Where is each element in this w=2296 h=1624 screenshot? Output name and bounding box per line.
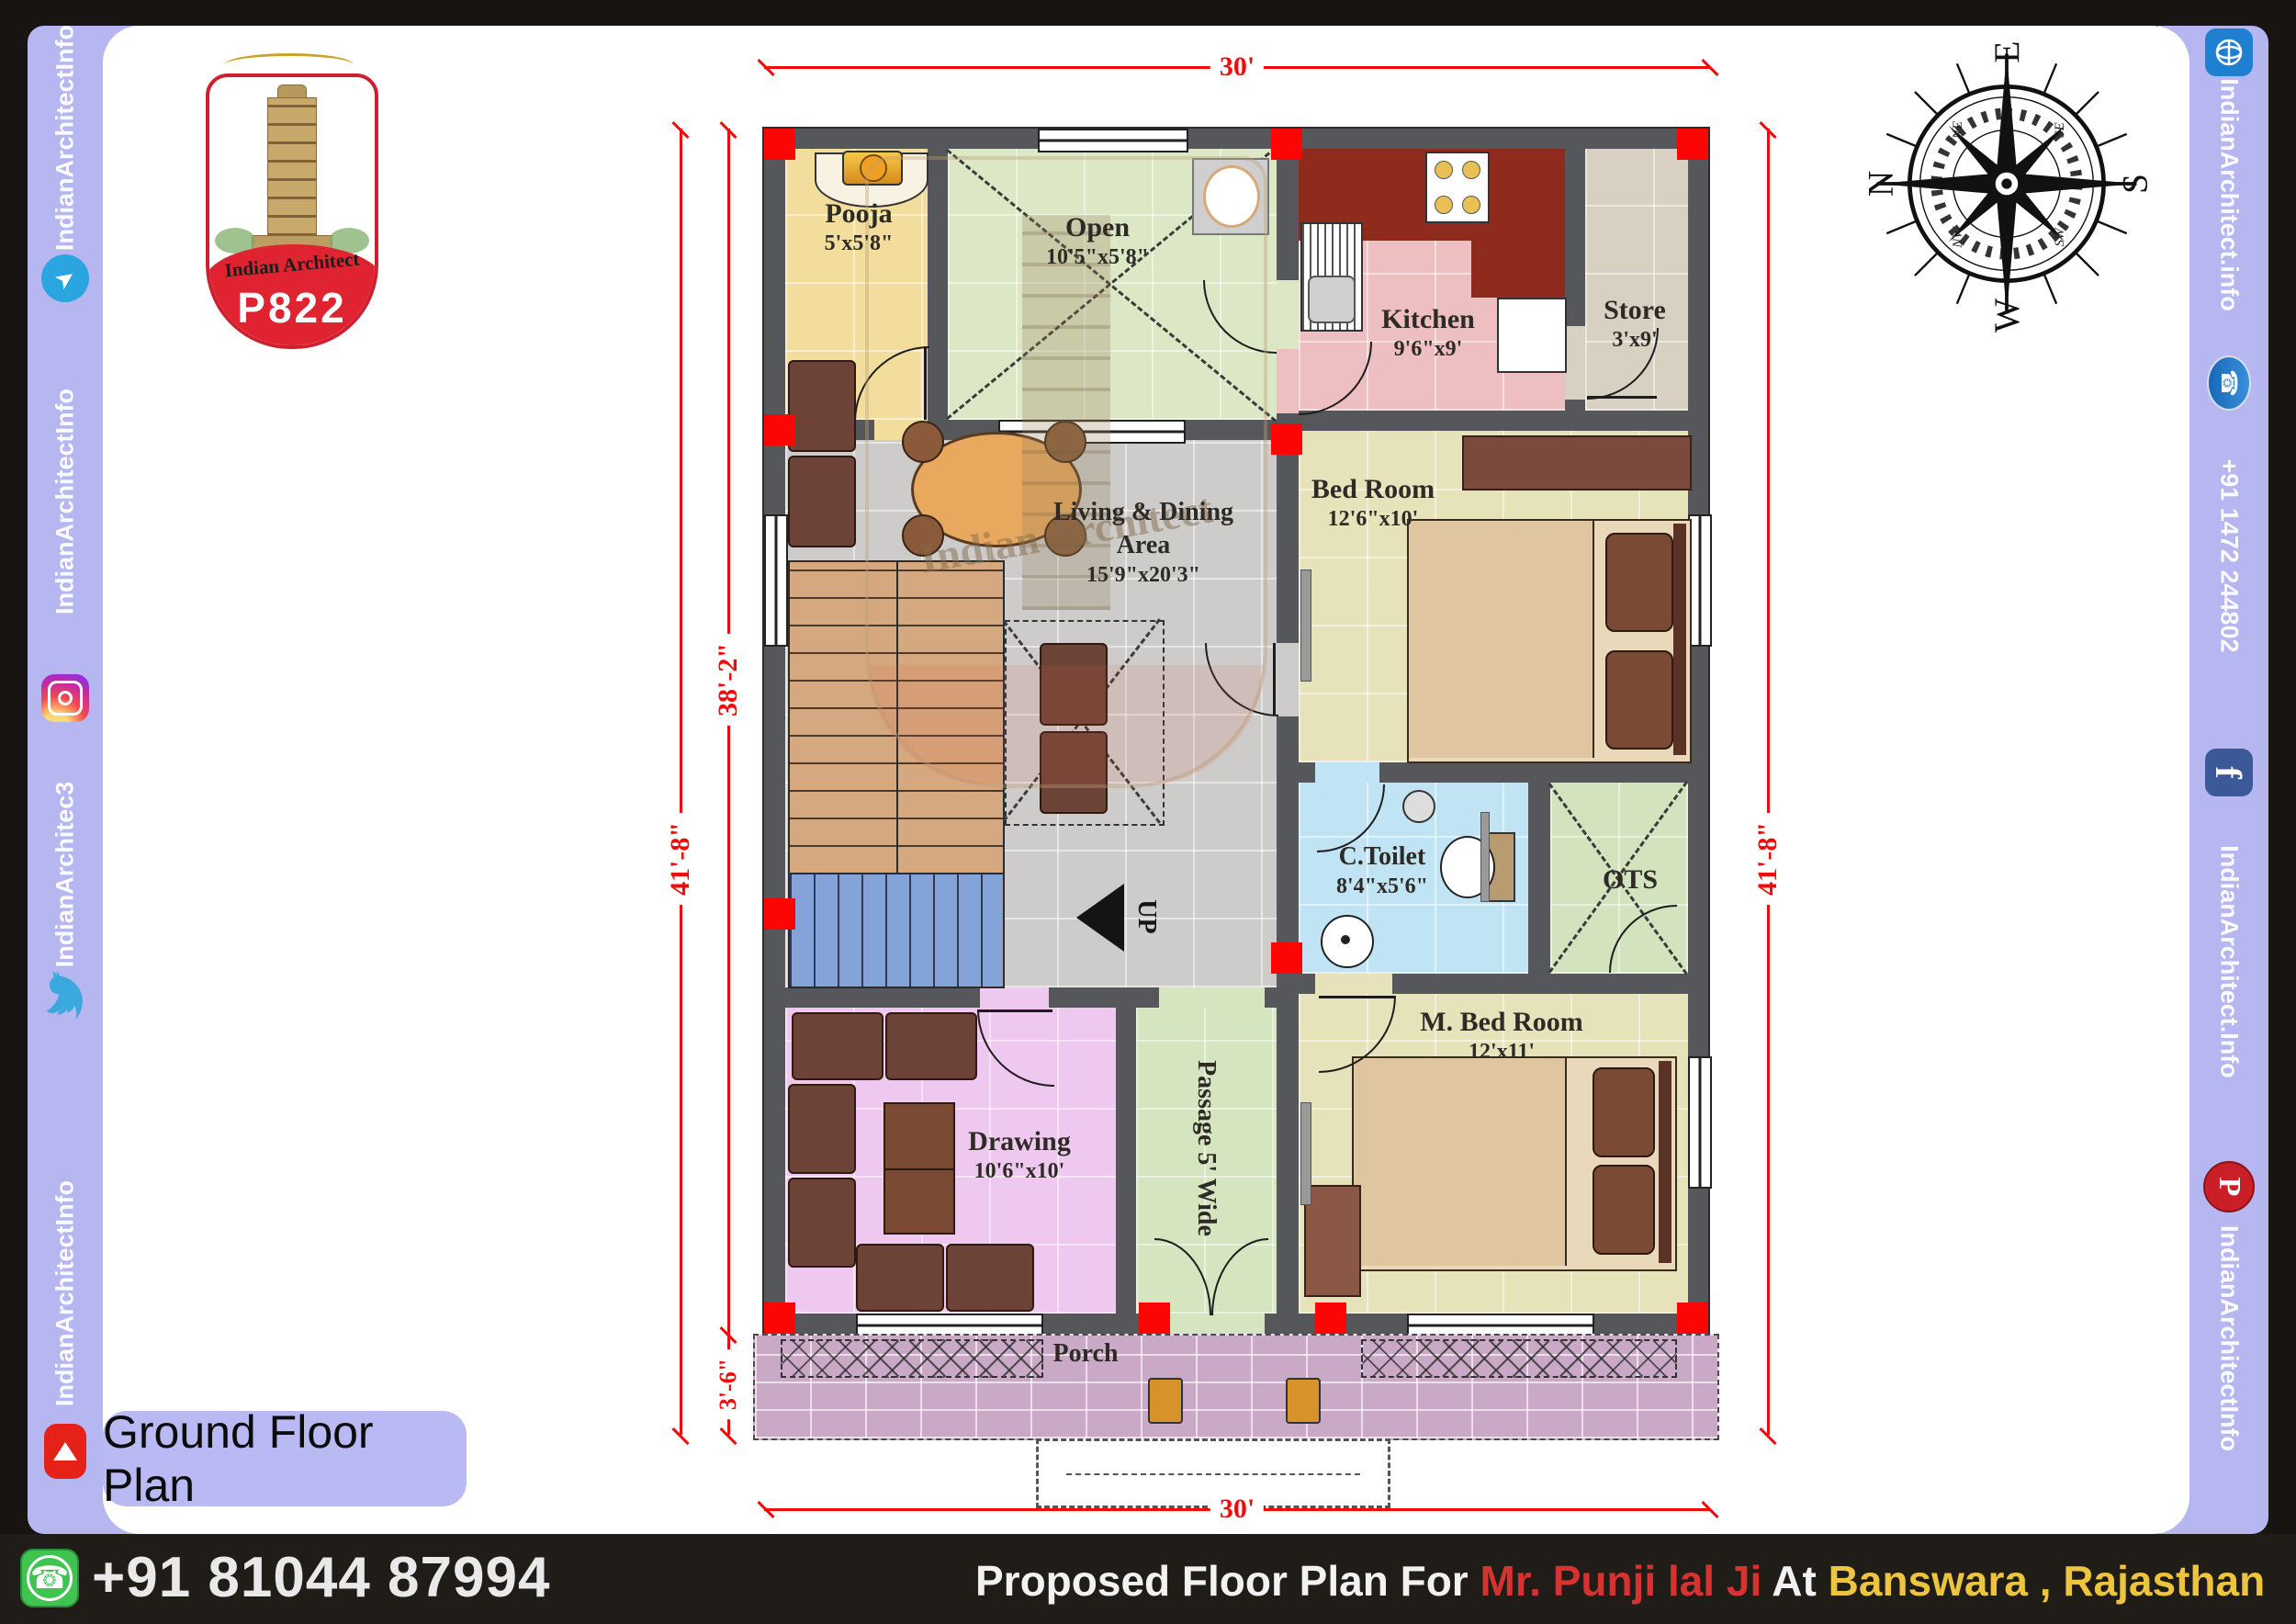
wardrobe: [1462, 435, 1692, 491]
wall-junction-marker: [1677, 1303, 1708, 1334]
door-leaf: [977, 1009, 1052, 1012]
dimension-line-left-outer: [680, 129, 682, 1435]
wall-junction-marker: [1271, 423, 1302, 455]
compass-ne-label: NE: [1951, 121, 1965, 140]
door-opening: [980, 987, 1049, 1008]
sidebar-handle-pinterest[interactable]: IndianArchitectInfo: [2215, 1225, 2244, 1451]
wall-junction-marker: [1677, 129, 1708, 160]
room-label-open: Open 10'5"x5'8": [1019, 211, 1176, 270]
twitter-icon[interactable]: [36, 964, 96, 1024]
window: [1688, 1056, 1712, 1189]
washing-machine: [1321, 915, 1374, 968]
tv-unit: [1300, 570, 1311, 682]
telegram-plane-glyph: ➤: [49, 261, 82, 296]
pillow: [1605, 533, 1673, 632]
wall-junction-marker: [1271, 942, 1302, 974]
stove: [1425, 152, 1490, 223]
center-table: [884, 1102, 955, 1235]
staircase-upper-flight: [788, 560, 1005, 876]
wall-junction-marker: [764, 129, 795, 160]
bed-blanket: [1354, 1058, 1567, 1266]
door-opening: [1159, 987, 1265, 1008]
porch-platform: Porch: [753, 1334, 1719, 1440]
door-opening: [1277, 280, 1299, 354]
door-opening: [1154, 1314, 1265, 1334]
sidebar-handle-instagram[interactable]: IndianArchitectInfo: [51, 389, 80, 615]
room-label-bedroom: Bed Room 12'6"x10': [1286, 473, 1460, 532]
sofa: [946, 1244, 1034, 1312]
door-leaf: [1587, 396, 1657, 399]
planter-grill: [1361, 1339, 1677, 1378]
armchair: [1040, 643, 1108, 726]
room-label-store: Store 3'x9': [1580, 294, 1690, 353]
wall-junction-marker: [1315, 1303, 1346, 1334]
sidebar-handle-telegram[interactable]: IndianArchitectInfo: [51, 25, 80, 251]
wall-junction-marker: [764, 898, 795, 930]
youtube-play-glyph: [53, 1442, 77, 1460]
dimension-line-left-inner: [727, 129, 730, 1334]
instagram-icon[interactable]: [41, 674, 89, 722]
footer-caption: Proposed Floor Plan For Mr. Punji lal Ji…: [975, 1556, 2289, 1606]
door-opening: [1277, 643, 1299, 716]
compass-west-label: W: [1986, 298, 2027, 333]
footer-phone-number[interactable]: +91 81044 87994: [92, 1545, 550, 1610]
armchair: [1040, 731, 1108, 814]
pinterest-icon[interactable]: P: [2203, 1161, 2255, 1212]
sofa: [788, 1084, 856, 1174]
staircase-lower-flight: [788, 873, 1005, 988]
compass-sw-label: SW: [2053, 227, 2067, 247]
sidebar-handle-twitter[interactable]: IndianArchitec3: [51, 782, 80, 968]
dimension-label-left-inner: 38'-2": [713, 634, 744, 726]
whatsapp-ring: ☎: [27, 1555, 73, 1601]
floor-plan: Indian Architect UP: [764, 129, 1708, 1334]
tv-unit: [1300, 1102, 1311, 1205]
compass-se-label: SE: [2053, 122, 2067, 138]
sidebar-handle-youtube[interactable]: IndianArchitectInfo: [51, 1180, 80, 1406]
youtube-icon[interactable]: [44, 1424, 86, 1479]
window: [764, 514, 788, 647]
phone-glyph: ☎: [2216, 369, 2243, 397]
room-label-ots: OTS: [1580, 863, 1681, 897]
page-title: Ground Floor Plan: [103, 1405, 467, 1512]
wall-junction-marker: [764, 1303, 795, 1334]
headboard: [1673, 524, 1686, 755]
caption-at: At: [1761, 1557, 1828, 1605]
room-label-kitchen: Kitchen 9'6"x9': [1350, 303, 1506, 362]
porch-post: [1148, 1378, 1183, 1424]
dimension-label-bottom: 30': [1210, 1494, 1264, 1525]
bed-blanket: [1409, 521, 1594, 758]
kitchen-counter: [1471, 241, 1565, 298]
room-label-living: Living & Dining Area 15'9"x20'3": [1038, 496, 1249, 588]
whatsapp-icon[interactable]: ☎: [20, 1549, 79, 1607]
dimension-label-top: 30': [1210, 51, 1264, 83]
toilet-partition: [1480, 812, 1490, 902]
dimension-label-left-outer: 41'-8": [665, 813, 696, 905]
room-label-pooja: Pooja 5'x5'8": [799, 197, 918, 256]
dining-chair: [902, 514, 944, 557]
plan-title-pill: Ground Floor Plan: [103, 1411, 467, 1506]
wall-junction-marker: [764, 414, 795, 445]
shower-head: [1402, 790, 1435, 823]
dresser: [1304, 1185, 1361, 1297]
pillow: [1593, 1165, 1655, 1255]
dimension-label-left-porch: 3'-6": [715, 1349, 742, 1419]
compass-nw-label: NW: [1951, 226, 1965, 249]
sofa: [788, 456, 856, 547]
porch-post: [1286, 1378, 1321, 1424]
instagram-lens: [48, 681, 83, 716]
refrigerator: [1497, 298, 1567, 373]
sidebar-phone-number[interactable]: +91 1472 244802: [2215, 459, 2244, 653]
dimension-label-right: 41'-8": [1752, 813, 1784, 905]
website-globe-icon[interactable]: [2205, 28, 2253, 76]
dimension-line-right: [1767, 129, 1770, 1435]
room-label-passage: Passage 5' Wide: [1191, 1060, 1221, 1236]
telegram-icon[interactable]: ➤: [41, 254, 89, 302]
compass-rose: N E S W NE SE SW NW: [1855, 32, 2158, 335]
washbasin: [1203, 165, 1260, 228]
door-opening: [1277, 349, 1299, 413]
room-label-porch: Porch: [1021, 1337, 1150, 1370]
plan-code: P822: [209, 283, 375, 333]
headboard: [1659, 1061, 1671, 1263]
facebook-f-glyph: f: [2208, 766, 2251, 778]
stairs-up-label: UP: [1131, 899, 1161, 933]
kitchen-sink: [1308, 276, 1356, 323]
sofa: [885, 1012, 977, 1080]
door-leaf: [1319, 996, 1394, 998]
pillow: [1593, 1067, 1655, 1157]
compass-north-label: N: [1861, 171, 1901, 197]
phone-icon[interactable]: ☎: [2207, 355, 2251, 411]
door-opening: [1315, 974, 1392, 994]
caption-location: Banswara , Rajasthan: [1829, 1557, 2266, 1605]
caption-prefix: Proposed Floor Plan For: [975, 1557, 1480, 1605]
wall-junction-marker: [1139, 1303, 1170, 1334]
caption-client-name: Mr. Punji lal Ji: [1480, 1557, 1761, 1605]
facebook-icon[interactable]: f: [2205, 749, 2253, 796]
logo-shield: Indian Architect P822: [206, 73, 378, 349]
sidebar-website-url[interactable]: IndianArchitect.info: [2215, 78, 2244, 311]
up-arrow-icon: [1076, 884, 1124, 952]
sofa: [856, 1244, 944, 1312]
wall-junction-marker: [1271, 129, 1302, 160]
room-label-master-bedroom: M. Bed Room 12'x11': [1414, 1006, 1589, 1065]
room-label-drawing: Drawing 10'6"x10': [955, 1125, 1084, 1184]
compass-east-label: E: [1986, 41, 2027, 63]
brand-logo: Indian Architect P822: [193, 48, 386, 360]
tower-illustration: [267, 97, 317, 237]
dining-chair: [902, 421, 944, 463]
door-opening: [1315, 762, 1379, 783]
room-label-toilet: C.Toilet 8'4"x5'6": [1313, 840, 1451, 899]
pinterest-p-glyph: P: [2212, 1178, 2246, 1197]
dining-chair: [1044, 421, 1086, 463]
window: [1038, 129, 1188, 152]
planter-grill: [781, 1339, 1043, 1378]
sofa: [788, 360, 856, 452]
sofa: [792, 1012, 884, 1080]
deity-idol: [860, 154, 887, 182]
compass-south-label: S: [2115, 174, 2155, 194]
sidebar-handle-facebook[interactable]: IndianArchitect.Info: [2215, 845, 2244, 1078]
sofa: [788, 1178, 856, 1268]
door-leaf: [924, 346, 927, 420]
pillow: [1605, 650, 1673, 750]
door-leaf: [1273, 643, 1276, 715]
